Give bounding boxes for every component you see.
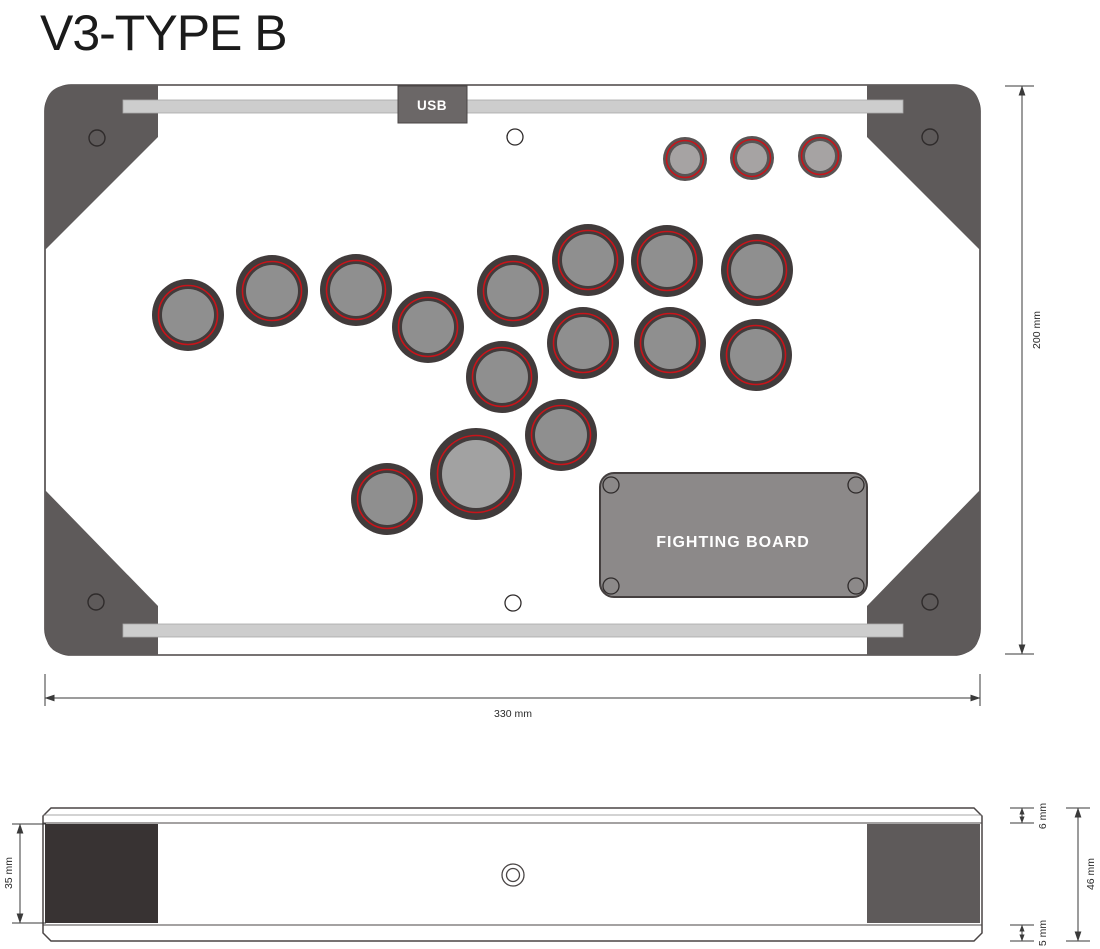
button-plunger: [730, 329, 782, 381]
menu-button: [663, 137, 707, 181]
menu-button: [730, 136, 774, 180]
panel-screw-hole: [507, 129, 523, 145]
action-button: [477, 255, 549, 327]
dim-label-total-height: 46 mm: [1085, 858, 1097, 890]
button-plunger: [644, 317, 696, 369]
side-block-right: [867, 824, 980, 923]
usb-label: USB: [417, 98, 447, 113]
action-button: [721, 234, 793, 306]
dim-label-top-panel: 6 mm: [1037, 803, 1049, 830]
menu-button: [798, 134, 842, 178]
action-button: [720, 319, 792, 391]
technical-drawing: V3-TYPE B USB FIGH: [0, 0, 1100, 949]
action-button: [351, 463, 423, 535]
button-plunger: [162, 289, 214, 341]
button-plunger: [535, 409, 587, 461]
dim-height-200mm: 200 mm: [1005, 86, 1043, 654]
button-plunger: [330, 264, 382, 316]
dim-bottom-panel-5mm: 5 mm: [1010, 920, 1049, 947]
button-plunger: [805, 141, 835, 171]
side-view: [43, 808, 982, 941]
action-button: [152, 279, 224, 351]
button-plunger: [246, 265, 298, 317]
dim-total-height-46mm: 46 mm: [1066, 808, 1097, 941]
page-title: V3-TYPE B: [40, 5, 287, 61]
button-plunger: [731, 244, 783, 296]
action-button: [631, 225, 703, 297]
button-plunger: [670, 144, 700, 174]
dim-label-height: 200 mm: [1031, 311, 1043, 349]
usb-port: USB: [398, 86, 467, 123]
button-plunger: [737, 143, 767, 173]
button-plunger: [476, 351, 528, 403]
mounting-bar-top: [123, 100, 903, 113]
panel-screw-hole: [505, 595, 521, 611]
button-plunger: [402, 301, 454, 353]
dim-label-inner-height: 35 mm: [3, 857, 15, 889]
action-button: [466, 341, 538, 413]
action-button: [634, 307, 706, 379]
action-button: [236, 255, 308, 327]
dim-label-width: 330 mm: [494, 708, 532, 720]
action-button: [392, 291, 464, 363]
top-view: USB FIGHTING BOARD: [45, 85, 980, 655]
fighting-board-label: FIGHTING BOARD: [656, 534, 810, 551]
fighting-board: FIGHTING BOARD: [600, 473, 867, 597]
drawing-page: V3-TYPE B USB FIGH: [0, 0, 1100, 949]
side-outline: [43, 808, 982, 941]
action-button: [547, 307, 619, 379]
button-plunger: [361, 473, 413, 525]
action-button: [525, 399, 597, 471]
jump-button: [430, 428, 522, 520]
dim-width-330mm: 330 mm: [45, 674, 980, 720]
dim-top-panel-6mm: 6 mm: [1010, 803, 1049, 830]
button-plunger: [442, 440, 510, 508]
dim-label-bottom-panel: 5 mm: [1037, 920, 1049, 947]
dim-inner-height-35mm: 35 mm: [3, 824, 46, 923]
mounting-bar-bottom: [123, 624, 903, 637]
side-block-left: [45, 824, 158, 923]
button-plunger: [557, 317, 609, 369]
action-button: [320, 254, 392, 326]
button-plunger: [641, 235, 693, 287]
button-plunger: [562, 234, 614, 286]
action-button: [552, 224, 624, 296]
button-plunger: [487, 265, 539, 317]
